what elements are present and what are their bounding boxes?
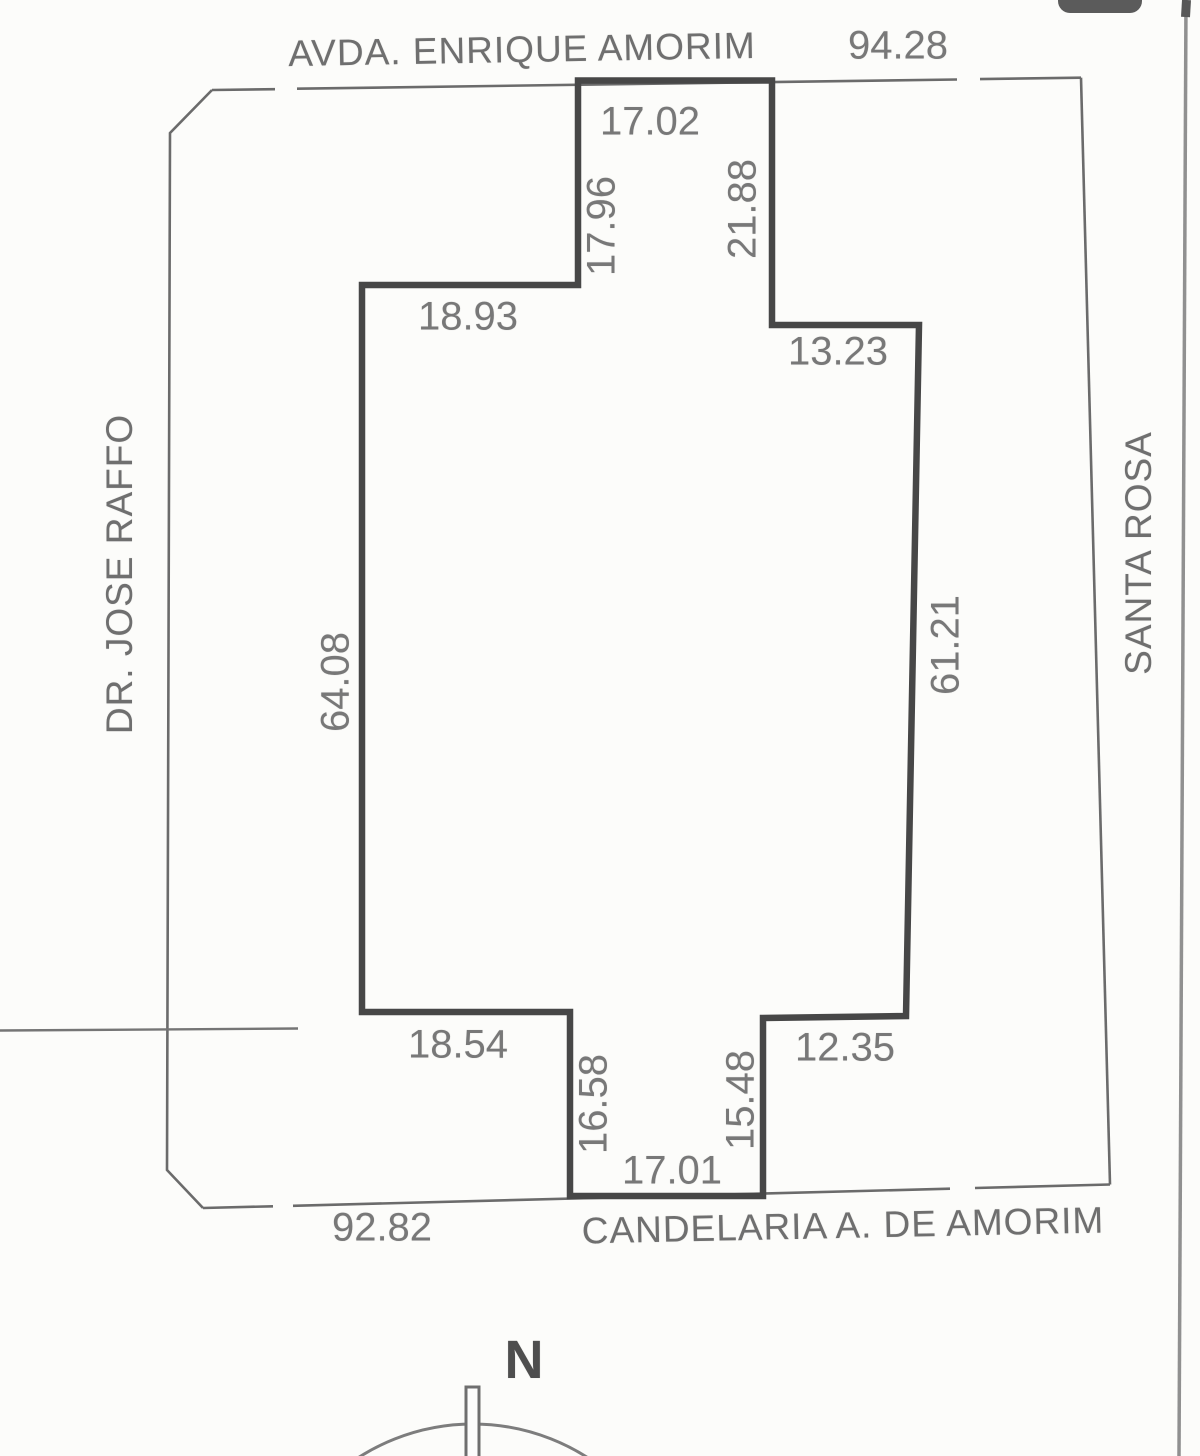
dimension-upper-right-depth: 21.88 (721, 159, 766, 259)
dimension-block-top: 94.28 (848, 24, 948, 69)
page-edge-line (1179, 0, 1186, 1456)
dimension-right-side: 61.21 (924, 595, 969, 695)
dimension-lower-left-step: 18.54 (408, 1023, 508, 1068)
street-name-right: SANTA ROSA (1118, 431, 1160, 675)
page-edge-dark-cap (1186, 0, 1187, 17)
dimension-lower-right-step: 12.35 (795, 1026, 895, 1071)
block-top-edge-segment (980, 78, 1081, 79)
dimension-bottom-frontage: 17.01 (622, 1149, 722, 1194)
block-right-edge (1081, 78, 1110, 1185)
dimension-left-side: 64.08 (314, 632, 359, 732)
north-label: N (505, 1329, 544, 1391)
dimension-top-frontage: 17.02 (600, 100, 700, 145)
dimension-upper-left-step: 18.93 (418, 295, 518, 340)
dimension-tab-left-depth: 16.58 (572, 1054, 617, 1154)
survey-plan-page: AVDA. ENRIQUE AMORIM DR. JOSE RAFFO SANT… (0, 0, 1200, 1456)
block-bottom-edge-segment (203, 1206, 273, 1208)
dimension-upper-right-step: 13.23 (788, 330, 888, 375)
street-name-left: DR. JOSE RAFFO (99, 414, 141, 734)
north-arrow-shaft (466, 1387, 479, 1456)
scan-artifact-blob (1058, 0, 1142, 13)
street-name-top: AVDA. ENRIQUE AMORIM (288, 25, 756, 75)
block-outline (167, 78, 1110, 1208)
dimension-block-bottom: 92.82 (332, 1206, 432, 1251)
dimension-tab-right-depth: 15.48 (719, 1050, 764, 1150)
block-left-edge-with-chamfers (167, 90, 212, 1208)
left-street-line (0, 1029, 298, 1031)
block-bottom-edge-segment (975, 1185, 1110, 1189)
dimension-upper-left-depth: 17.96 (580, 176, 625, 276)
block-top-edge-segment (212, 89, 275, 90)
